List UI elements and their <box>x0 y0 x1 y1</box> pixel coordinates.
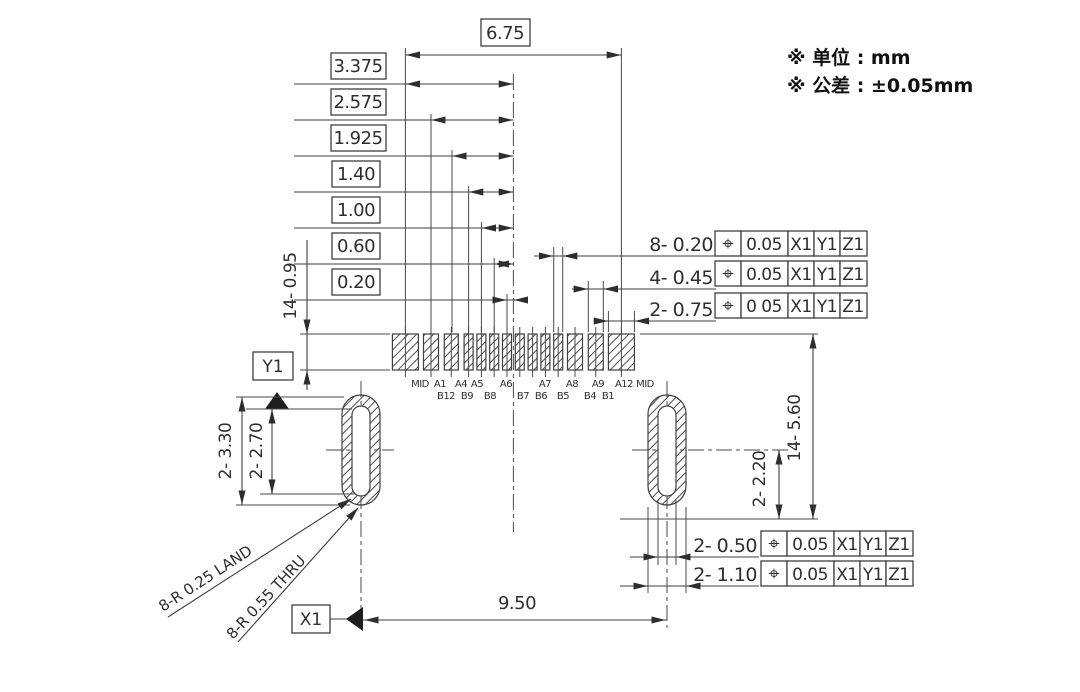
position-symbol: ⌖ <box>768 531 779 555</box>
pad-a1-b12 <box>424 334 439 370</box>
svg-text:Z1: Z1 <box>842 265 863 285</box>
dim-3-375: 3.375 <box>333 56 382 77</box>
pad-small-2 <box>477 334 486 370</box>
position-symbol: ⌖ <box>722 231 733 255</box>
callout-2-075: 2- 0.75 <box>649 299 713 321</box>
pin-label: B6 <box>535 391 547 402</box>
pin-label: B12 <box>437 391 455 402</box>
fcf-row-1: ⌖ 0.05 X1 Y1 Z1 <box>715 231 867 256</box>
left-oval-hole <box>352 406 370 496</box>
dim-1-925: 1.925 <box>333 128 382 149</box>
pad-a9-b4 <box>588 334 603 370</box>
pin-label: B8 <box>484 391 496 402</box>
dim-0-20: 0.20 <box>337 272 375 293</box>
svg-text:Z1: Z1 <box>842 297 863 317</box>
svg-text:Y1: Y1 <box>816 235 837 255</box>
dim-2-220: 2- 2.20 <box>750 451 770 508</box>
pad-small-5 <box>515 334 524 370</box>
pad-small-6 <box>528 334 537 370</box>
datum-x1-label: X1 <box>300 610 322 630</box>
datum-x1-triangle <box>346 607 363 631</box>
pin-label: A1 <box>434 379 446 390</box>
dim-9-50: 9.50 <box>498 593 536 614</box>
callout-8-020: 8- 0.20 <box>649 234 713 256</box>
callout-2-050: 2- 0.50 <box>693 535 757 557</box>
pin-label: B9 <box>461 391 473 402</box>
pad-small-4 <box>503 334 512 370</box>
svg-text:Z1: Z1 <box>888 535 909 555</box>
note-unit: ※ 单位 : mm <box>787 46 911 69</box>
fcf-row-4: ⌖ 0.05 X1 Y1 Z1 <box>761 531 913 556</box>
fcf-top-group: ⌖ 0.05 X1 Y1 Z1 ⌖ 0.05 X1 Y1 Z1 ⌖ 0 05 X… <box>715 231 867 318</box>
pin-label: A4 <box>455 379 467 390</box>
pin-labels: MID A1 A4 A5 A6 A7 A8 A9 A12 MID B12 B9 … <box>411 379 655 402</box>
svg-text:Y1: Y1 <box>862 565 883 585</box>
pin-label: B7 <box>517 391 529 402</box>
pad-mid-left <box>392 334 418 370</box>
datum-y1: Y1 <box>246 352 352 409</box>
note-tolerance: ※ 公差 : ±0.05mm <box>787 74 973 97</box>
dim-2-330: 2- 3.30 <box>216 423 236 480</box>
pad-a8 <box>568 334 583 370</box>
svg-text:0.05: 0.05 <box>746 265 782 285</box>
svg-text:X1: X1 <box>790 265 811 285</box>
dim-2-575: 2.575 <box>333 92 382 113</box>
pin-label: A9 <box>592 379 604 390</box>
leader-land: 8-R 0.25 LAND <box>155 542 255 616</box>
dim-0-60: 0.60 <box>337 236 375 257</box>
drawing-notes: ※ 单位 : mm ※ 公差 : ±0.05mm <box>787 46 973 97</box>
callout-2-110: 2- 1.10 <box>693 564 757 586</box>
svg-text:0.05: 0.05 <box>792 535 828 555</box>
pad-width-callouts: 8- 0.20 4- 0.45 2- 0.75 <box>534 234 716 332</box>
dim-14-560: 14- 5.60 <box>785 394 805 461</box>
pin-label: B1 <box>602 391 614 402</box>
pin-label: A8 <box>566 379 578 390</box>
svg-text:X1: X1 <box>836 565 857 585</box>
svg-text:X1: X1 <box>836 535 857 555</box>
pin-label: A6 <box>500 379 512 390</box>
callout-4-045: 4- 0.45 <box>649 267 713 289</box>
svg-text:0 05: 0 05 <box>746 297 782 317</box>
pad-small-1 <box>464 334 473 370</box>
svg-text:X1: X1 <box>790 235 811 255</box>
position-symbol: ⌖ <box>722 261 733 285</box>
dim-14-095: 14- 0.95 <box>281 252 301 319</box>
dim-6-75: 6.75 <box>486 23 524 44</box>
left-oval-pad: 2- 3.30 2- 2.70 <box>216 381 394 630</box>
hole-callouts: 2- 0.50 2- 1.10 <box>620 535 759 586</box>
pin-label: MID <box>636 379 655 390</box>
position-symbol: ⌖ <box>722 293 733 317</box>
svg-text:0.05: 0.05 <box>792 565 828 585</box>
right-oval-hole <box>658 406 676 496</box>
dim-2-270: 2- 2.70 <box>247 423 267 480</box>
pin-label: A12 <box>615 379 633 390</box>
svg-text:X1: X1 <box>790 297 811 317</box>
pin-label: B5 <box>557 391 569 402</box>
datum-y1-triangle <box>265 392 289 409</box>
position-symbol: ⌖ <box>768 561 779 585</box>
pad-small-7 <box>541 334 550 370</box>
svg-text:Z1: Z1 <box>888 565 909 585</box>
pin-label: A5 <box>471 379 483 390</box>
fcf-row-2: ⌖ 0.05 X1 Y1 Z1 <box>715 261 867 286</box>
fcf-row-5: ⌖ 0.05 X1 Y1 Z1 <box>761 561 913 586</box>
dim-1-00: 1.00 <box>337 200 375 221</box>
fcf-bottom-group: ⌖ 0.05 X1 Y1 Z1 ⌖ 0.05 X1 Y1 Z1 <box>761 531 913 586</box>
drawing-canvas: 6.75 3.375 2.575 1.925 1.40 1.00 0.60 0.… <box>0 0 1080 692</box>
svg-text:Y1: Y1 <box>816 265 837 285</box>
svg-text:0.05: 0.05 <box>746 235 782 255</box>
svg-text:Z1: Z1 <box>842 235 863 255</box>
pad-small-3 <box>490 334 499 370</box>
pin-label: B4 <box>584 391 596 402</box>
pin-label: MID <box>411 379 430 390</box>
svg-text:Y1: Y1 <box>862 535 883 555</box>
pad-a4-b9 <box>444 334 458 370</box>
fcf-row-3: ⌖ 0 05 X1 Y1 Z1 <box>715 293 867 318</box>
footprint-drawing: 6.75 3.375 2.575 1.925 1.40 1.00 0.60 0.… <box>0 0 1080 692</box>
pad-row <box>300 327 818 377</box>
pad-small-8 <box>554 334 563 370</box>
bottom-dimension: 9.50 X1 <box>292 593 667 633</box>
pad-mid-right <box>608 334 634 370</box>
datum-y1-label: Y1 <box>261 357 283 377</box>
svg-text:Y1: Y1 <box>816 297 837 317</box>
pin-label: A7 <box>539 379 551 390</box>
dim-1-40: 1.40 <box>337 164 375 185</box>
